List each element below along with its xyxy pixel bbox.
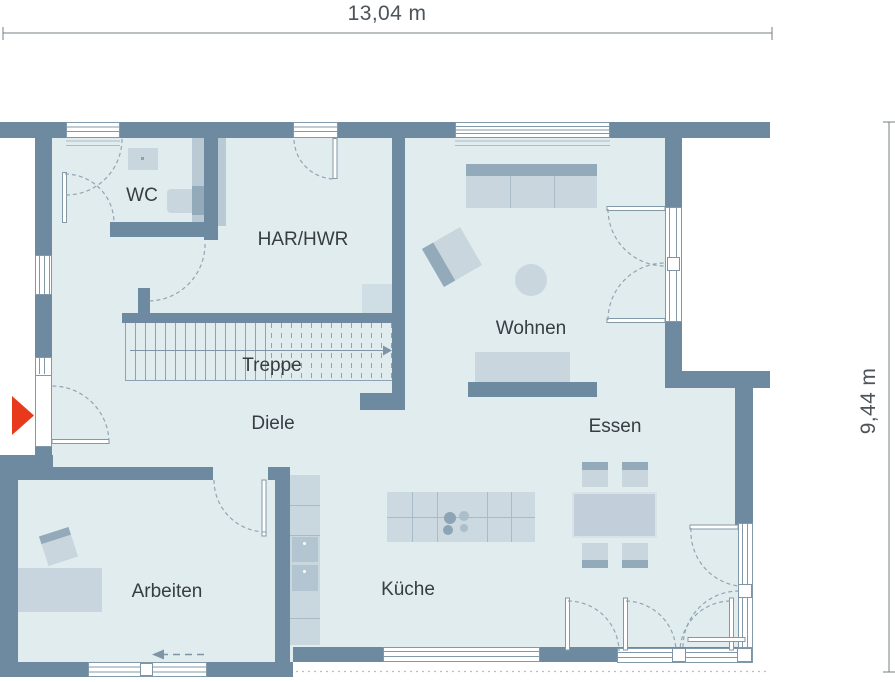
window-wc	[66, 122, 120, 138]
wall-vestibule-door-stub	[138, 288, 150, 313]
room-label-essen: Essen	[589, 416, 642, 438]
dimension-ticks-width	[3, 27, 772, 40]
room-label-wc: WC	[126, 185, 158, 207]
wall-stairs-top	[122, 313, 392, 323]
door-handle	[667, 257, 680, 271]
wall-wc-bottom	[110, 222, 218, 237]
unit-divider	[290, 535, 320, 536]
door-har-exterior	[293, 122, 338, 138]
outside-bottom-strip	[293, 662, 770, 682]
room-label-har-hwr: HAR/HWR	[258, 229, 349, 251]
dimension-depth-label: 9,44 m	[857, 368, 881, 435]
unit-divider	[290, 618, 320, 619]
outside-terrace-notch	[682, 138, 770, 371]
sofa-seats	[466, 176, 597, 208]
sink-drain	[141, 157, 144, 160]
kitchen-tall-units	[290, 475, 320, 645]
floor-arbeiten-extension	[18, 455, 35, 662]
dimension-ticks-depth	[883, 122, 895, 672]
sofa-cushion-divider	[554, 176, 555, 208]
room-label-kueche: Küche	[381, 579, 435, 601]
wall-stairs-stub	[360, 393, 405, 410]
sideboard	[475, 352, 570, 382]
room-label-arbeiten: Arbeiten	[132, 581, 203, 603]
dining-table	[572, 492, 657, 538]
kitchen-island	[387, 492, 535, 542]
window-left-1	[35, 255, 52, 295]
sofa-cushion-divider	[510, 176, 511, 208]
wall-arbeiten-top	[18, 467, 213, 480]
coffee-table	[515, 264, 547, 296]
room-label-wohnen: Wohnen	[496, 318, 566, 340]
sofa-back	[466, 164, 597, 176]
chair-back	[582, 560, 608, 568]
wall-exterior-right-lower	[735, 388, 753, 527]
wall-wohnen-essen-divider	[468, 382, 597, 397]
wall-stairs-side	[392, 138, 405, 393]
har-shaft	[362, 284, 392, 313]
window-wohnen	[455, 122, 610, 138]
room-label-diele: Diele	[251, 413, 294, 435]
cooktop-burner	[459, 511, 469, 521]
oven-knob	[303, 542, 306, 545]
wc-toilet-bowl	[167, 189, 194, 213]
chair-back	[622, 462, 648, 470]
cooktop-burner	[444, 512, 456, 524]
dining-chair	[622, 543, 648, 568]
unit-divider	[290, 505, 320, 506]
wall-wc-right	[204, 138, 218, 240]
door-handle	[672, 648, 686, 662]
dining-chair	[582, 462, 608, 487]
dining-chair	[622, 462, 648, 487]
entry-door	[35, 357, 52, 447]
door-handle	[140, 663, 153, 676]
room-label-treppe: Treppe	[242, 355, 302, 377]
floor-plan: WC HAR/HWR Treppe Wohnen Diele Essen Arb…	[0, 0, 895, 682]
chair-back	[582, 462, 608, 470]
oven-knob	[303, 570, 306, 573]
window-kitchen	[383, 647, 540, 662]
entrance-arrow-icon	[12, 396, 34, 435]
cooktop-burner	[443, 525, 453, 535]
dimension-width-label: 13,04 m	[348, 2, 427, 26]
wall-arbeiten-kitchen	[275, 467, 290, 662]
wall-arbeiten-left	[0, 455, 18, 677]
wall-terrace-mid	[665, 371, 770, 388]
dining-chair	[582, 543, 608, 568]
oven-appliance	[292, 537, 318, 562]
door-handle	[738, 584, 752, 598]
oven-appliance	[292, 565, 318, 591]
wc-sink	[128, 148, 158, 170]
chair-back	[622, 560, 648, 568]
glazing-corner-post	[737, 648, 752, 662]
cooktop-burner	[460, 524, 468, 532]
desk	[17, 568, 102, 612]
